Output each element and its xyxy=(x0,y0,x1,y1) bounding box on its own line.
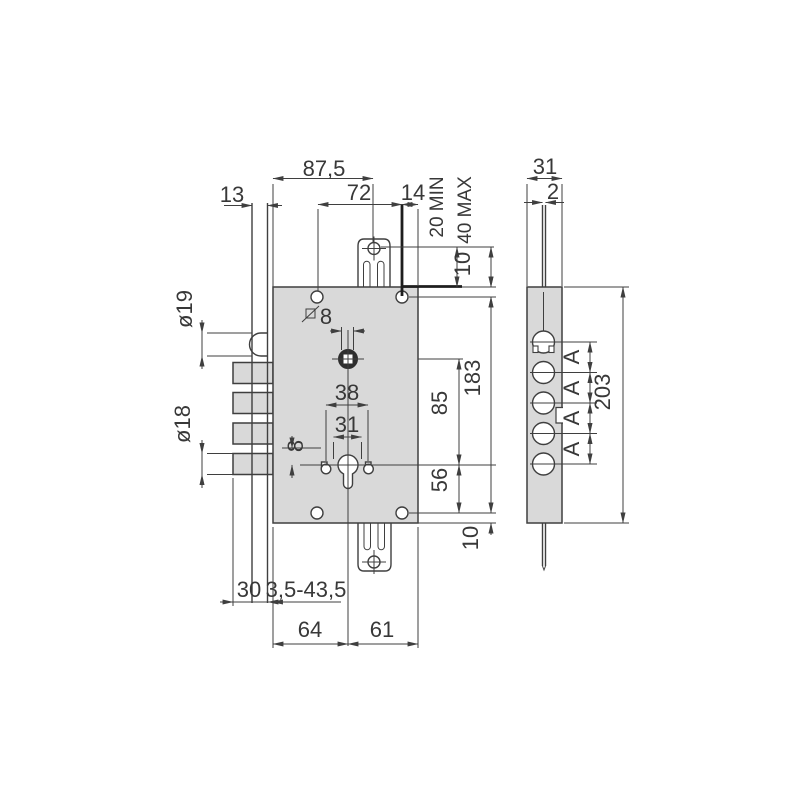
dim-hole-to-edge: 14 xyxy=(401,180,425,205)
dim-side-body-height: 203 xyxy=(590,374,615,411)
dim-cylinder-to-back: 61 xyxy=(370,617,394,642)
dim-tab-min: 20 MIN xyxy=(427,176,448,237)
dim-tab-max: 40 MAX xyxy=(455,176,476,244)
dim-side-body-width: 31 xyxy=(533,154,557,179)
dim-spindle-square: 8 xyxy=(320,304,332,329)
dim-bolt-pitch-1: A xyxy=(559,349,584,364)
dim-hole-spacing: 72 xyxy=(347,180,371,205)
dim-cyl-hole-outer: 38 xyxy=(335,380,359,405)
dim-plate-offset: 13 xyxy=(220,182,244,207)
dim-top-edge-to-hole: 10 xyxy=(450,252,475,276)
dim-bolt-pitch-3: A xyxy=(559,410,584,425)
bottom-mounting-tab xyxy=(358,522,391,574)
dim-overall-width: 87,5 xyxy=(303,156,346,181)
technical-drawing-page: 87,5 72 14 13 20 MIN 40 MAX 10 183 85 56 xyxy=(0,0,800,800)
dim-faceplate-thickness: 2 xyxy=(547,179,559,204)
dim-edge-to-cylinder: 64 xyxy=(298,617,322,642)
dim-bottom-edge-to-hole: 10 xyxy=(458,526,483,550)
dim-bolt-throw: 30 xyxy=(237,577,261,602)
dim-spindle-to-cylinder: 85 xyxy=(427,391,452,415)
dim-latch-diameter: ø19 xyxy=(172,290,197,328)
dim-cyl-hole-inner: 31 xyxy=(335,412,359,437)
dim-cylinder-to-hole: 56 xyxy=(427,468,452,492)
dim-bolt-diameter: ø18 xyxy=(170,405,195,443)
dim-hole-offset: 8 xyxy=(283,440,308,452)
dim-backset-range: 3,5-43,5 xyxy=(266,577,347,602)
dim-hole-span-vertical: 183 xyxy=(460,360,485,397)
top-mounting-tab xyxy=(358,237,390,289)
lock-dimensional-drawing: 87,5 72 14 13 20 MIN 40 MAX 10 183 85 56 xyxy=(0,0,800,800)
dim-bolt-pitch-2: A xyxy=(559,380,584,395)
dim-bolt-pitch-4: A xyxy=(559,441,584,456)
